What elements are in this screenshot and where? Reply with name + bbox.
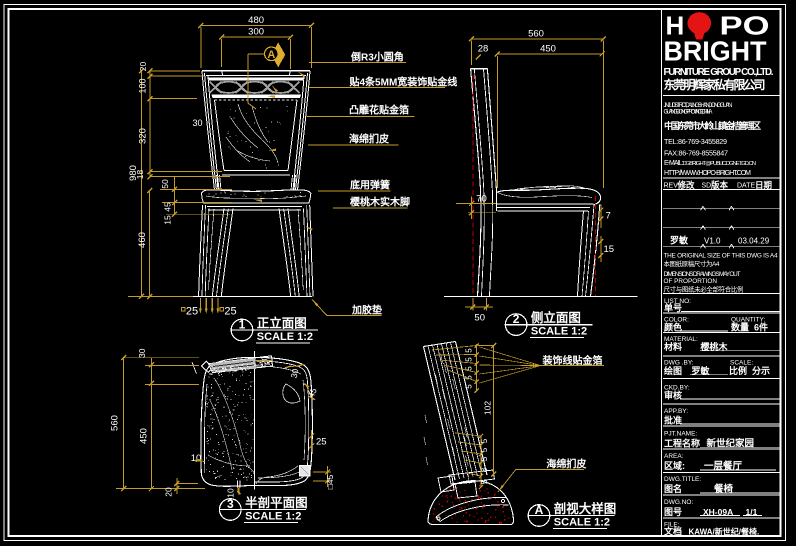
svg-text:贴4条5MM宽装饰贴金线: 贴4条5MM宽装饰贴金线 bbox=[349, 76, 458, 89]
svg-text:正立面图: 正立面图 bbox=[257, 316, 307, 331]
svg-text:15: 15 bbox=[163, 215, 173, 225]
svg-text:450: 450 bbox=[139, 428, 150, 444]
svg-text:海绵扪皮: 海绵扪皮 bbox=[546, 458, 586, 471]
svg-text:KAWA/新世纪/餐椅.: KAWA/新世纪/餐椅. bbox=[689, 527, 760, 537]
svg-text:版本: 版本 bbox=[710, 180, 729, 190]
svg-text:SD: SD bbox=[702, 183, 712, 190]
svg-text:450: 450 bbox=[540, 44, 556, 55]
svg-text:颜色: 颜色 bbox=[664, 322, 682, 333]
svg-text:FURNITURE GROUP CO.,LTD.: FURNITURE GROUP CO.,LTD. bbox=[664, 67, 774, 78]
svg-text:PJT.NAME:: PJT.NAME: bbox=[664, 430, 697, 437]
svg-text:SCALE 1:2: SCALE 1:2 bbox=[257, 331, 313, 343]
svg-text:DIMENSIONS DRAWINGS MAY OUT: DIMENSIONS DRAWINGS MAY OUT bbox=[664, 271, 741, 278]
svg-text:加胶垫: 加胶垫 bbox=[351, 304, 382, 317]
svg-text:100: 100 bbox=[138, 78, 148, 93]
svg-text:尺寸与图纸未必全部符合比例: 尺寸与图纸未必全部符合比例 bbox=[664, 285, 744, 294]
svg-text:日期: 日期 bbox=[755, 180, 773, 190]
svg-text:V1.0: V1.0 bbox=[704, 237, 721, 246]
svg-text:区域:: 区域: bbox=[664, 460, 685, 471]
svg-text:罗敏: 罗敏 bbox=[692, 365, 711, 376]
svg-text:□45: □45 bbox=[325, 474, 335, 489]
svg-text:320: 320 bbox=[138, 128, 149, 144]
svg-text:REV: REV bbox=[664, 183, 679, 190]
svg-text:5: 5 bbox=[465, 384, 474, 389]
svg-text:25: 25 bbox=[316, 437, 327, 448]
svg-text:SCALE 1:2: SCALE 1:2 bbox=[245, 511, 301, 523]
svg-text:15: 15 bbox=[604, 244, 615, 255]
svg-text:25: 25 bbox=[224, 306, 236, 318]
svg-text:102: 102 bbox=[483, 401, 493, 415]
svg-text:装饰线贴金箔: 装饰线贴金箔 bbox=[542, 354, 603, 367]
svg-text:5: 5 bbox=[480, 438, 489, 443]
svg-text:45: 45 bbox=[163, 202, 173, 212]
svg-text:HTTP://WWW.HOPO-BRIGHT.COM: HTTP://WWW.HOPO-BRIGHT.COM bbox=[664, 170, 751, 177]
svg-text:460: 460 bbox=[137, 232, 148, 248]
svg-text:5: 5 bbox=[480, 447, 489, 452]
svg-text:SCALE 1:2: SCALE 1:2 bbox=[531, 326, 587, 338]
svg-text:OF PROPORTION: OF PROPORTION bbox=[664, 278, 718, 285]
svg-text:AREA:: AREA: bbox=[664, 453, 684, 460]
svg-text:FAX:86-769-8555847: FAX:86-769-8555847 bbox=[664, 149, 728, 158]
svg-text:东莞明辉家私有限公司: 东莞明辉家私有限公司 bbox=[664, 77, 766, 92]
svg-text:5: 5 bbox=[480, 479, 489, 484]
svg-text:18: 18 bbox=[135, 170, 145, 180]
svg-text:罗敏: 罗敏 bbox=[670, 235, 689, 246]
svg-text:凸雕花贴金箔: 凸雕花贴金箔 bbox=[349, 104, 409, 117]
svg-text:材料: 材料 bbox=[663, 341, 682, 352]
svg-text:工程名称: 工程名称 bbox=[664, 437, 700, 448]
svg-text:20: 20 bbox=[163, 487, 173, 497]
svg-text:侧立面图: 侧立面图 bbox=[531, 310, 581, 325]
svg-text:A: A bbox=[267, 49, 275, 61]
svg-text:单号: 单号 bbox=[664, 302, 682, 313]
svg-text:480: 480 bbox=[248, 15, 264, 26]
svg-text:560: 560 bbox=[110, 415, 121, 431]
svg-text:比例 分示: 比例 分示 bbox=[729, 365, 770, 376]
svg-text:DWG.TITLE:: DWG.TITLE: bbox=[664, 476, 701, 483]
svg-text:E-MAIL:DGBRIGHT@PUBLIC.DGNET.G: E-MAIL:DGBRIGHT@PUBLIC.DGNET.GD.CN bbox=[664, 160, 756, 167]
svg-text:300: 300 bbox=[248, 27, 264, 38]
svg-text:20: 20 bbox=[260, 356, 270, 366]
svg-text:5: 5 bbox=[465, 357, 474, 362]
svg-text:底用弹簧: 底用弹簧 bbox=[350, 178, 390, 191]
svg-text:倒R3小圆角: 倒R3小圆角 bbox=[350, 51, 404, 64]
svg-text:半剖平面图: 半剖平面图 bbox=[245, 495, 308, 510]
svg-text:70: 70 bbox=[476, 194, 487, 205]
svg-text:560: 560 bbox=[528, 28, 544, 39]
svg-text:03.04.29: 03.04.29 bbox=[738, 237, 770, 246]
svg-text:修改: 修改 bbox=[677, 180, 696, 190]
svg-text:28: 28 bbox=[478, 44, 489, 55]
svg-text:本图纸原稿尺寸为A4: 本图纸原稿尺寸为A4 bbox=[664, 259, 720, 268]
svg-text:审核: 审核 bbox=[664, 389, 682, 400]
svg-text:5: 5 bbox=[465, 348, 474, 353]
svg-text:图号: 图号 bbox=[664, 507, 682, 517]
svg-text:樱桃木实木脚: 樱桃木实木脚 bbox=[350, 196, 410, 209]
svg-text:绘图: 绘图 bbox=[664, 365, 682, 376]
svg-text:30: 30 bbox=[137, 348, 147, 358]
svg-text:50: 50 bbox=[160, 179, 170, 189]
svg-text:SCALE 1:2: SCALE 1:2 bbox=[554, 517, 610, 529]
svg-text:DWG.NO:: DWG.NO: bbox=[664, 499, 693, 506]
svg-text:7: 7 bbox=[606, 211, 611, 222]
svg-text:25: 25 bbox=[186, 306, 198, 318]
svg-text:30: 30 bbox=[192, 118, 202, 128]
svg-text:海绵扪皮: 海绵扪皮 bbox=[349, 133, 389, 146]
svg-text:文档: 文档 bbox=[663, 526, 682, 537]
svg-text:APP.BY:: APP.BY: bbox=[664, 408, 688, 415]
svg-text:剖视大样图: 剖视大样图 bbox=[554, 501, 617, 516]
svg-text:TEL:86-769-3455829: TEL:86-769-3455829 bbox=[664, 137, 727, 146]
svg-text:8: 8 bbox=[480, 467, 489, 472]
svg-text:批准: 批准 bbox=[664, 414, 682, 425]
svg-text:中国东莞市大岭山镇金桔管理区: 中国东莞市大岭山镇金桔管理区 bbox=[664, 120, 761, 131]
svg-text:DATE: DATE bbox=[737, 183, 755, 190]
svg-text:10: 10 bbox=[191, 453, 202, 464]
svg-text:GUANGDONGPROVINCE,CHINA: GUANGDONGPROVINCE,CHINA bbox=[664, 109, 714, 116]
svg-text:THE ORIGINAL SIZE OF THIS DWG: THE ORIGINAL SIZE OF THIS DWG IS A4 bbox=[664, 253, 778, 260]
svg-text:数量 6件: 数量 6件 bbox=[731, 322, 768, 333]
svg-text:BRIGHT: BRIGHT bbox=[664, 36, 767, 67]
svg-text:50: 50 bbox=[474, 313, 485, 324]
svg-text:图名: 图名 bbox=[664, 483, 682, 494]
svg-text:樱桃木: 樱桃木 bbox=[700, 341, 729, 352]
svg-text:5: 5 bbox=[480, 456, 489, 461]
svg-text:20: 20 bbox=[138, 62, 148, 72]
